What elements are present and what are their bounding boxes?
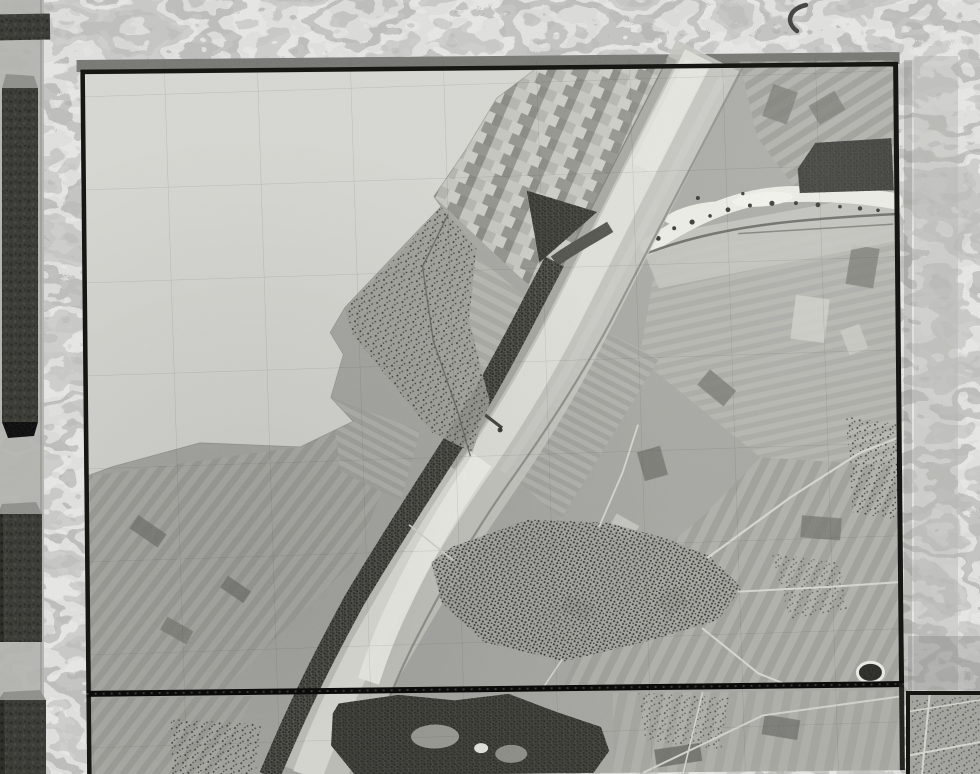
left-binding	[0, 0, 50, 774]
tape-block-mid	[0, 502, 42, 642]
tape-block-bevel-top	[0, 502, 42, 514]
tape-block-top	[0, 14, 50, 41]
photomosaic-scene	[0, 0, 980, 774]
film-grain	[81, 52, 905, 774]
page-edge-band	[914, 56, 958, 692]
corner-sheet	[906, 691, 980, 774]
tape-block-mottle	[0, 514, 42, 642]
tape-edge-line	[40, 0, 42, 774]
album-page	[0, 0, 980, 774]
tape-block-mottle	[2, 88, 38, 422]
tape-block-bottom	[0, 690, 46, 774]
tape-block-mottle	[0, 14, 50, 41]
tape-block-bevel-bottom	[2, 422, 38, 438]
page-edge-seam	[904, 60, 912, 692]
corner-shadow	[908, 636, 980, 690]
tape-block-mottle	[0, 700, 46, 774]
corner-grain	[906, 691, 980, 774]
mosaic-sheet	[77, 52, 907, 774]
tape-block-long	[2, 74, 38, 438]
tape-block-bevel-top	[2, 74, 38, 88]
